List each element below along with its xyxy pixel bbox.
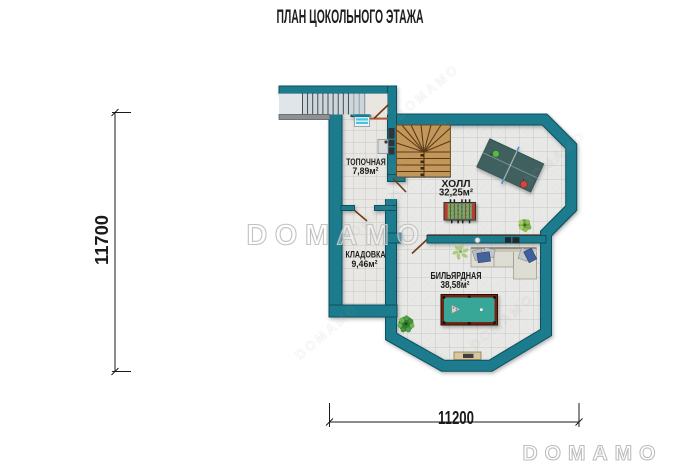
svg-text:11200: 11200 [438, 408, 474, 428]
svg-text:DOMAMO: DOMAMO [523, 442, 663, 465]
svg-text:7,89м²: 7,89м² [353, 166, 379, 177]
svg-text:32,25м²: 32,25м² [439, 188, 474, 199]
svg-text:DOMAMO: DOMAMO [246, 220, 426, 252]
svg-text:11700: 11700 [92, 215, 112, 265]
svg-text:38,58м²: 38,58м² [441, 280, 471, 291]
svg-text:9,46м²: 9,46м² [352, 259, 378, 270]
svg-text:ПЛАН ЦОКОЛЬНОГО ЭТАЖА: ПЛАН ЦОКОЛЬНОГО ЭТАЖА [277, 6, 424, 28]
svg-text:DOMAMO: DOMAMO [292, 301, 362, 363]
svg-text:DOMAMO: DOMAMO [392, 61, 462, 123]
